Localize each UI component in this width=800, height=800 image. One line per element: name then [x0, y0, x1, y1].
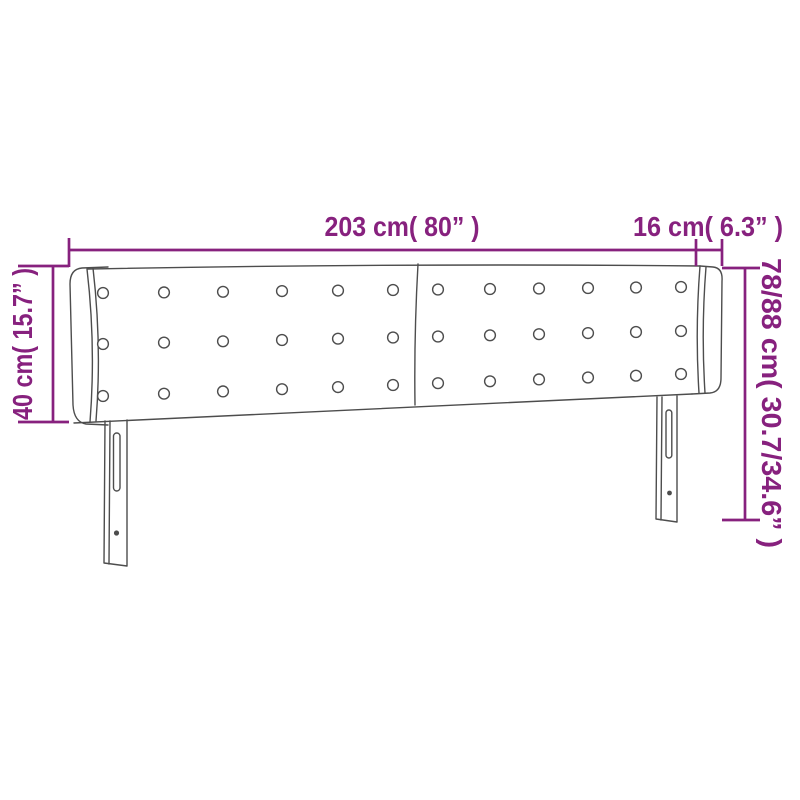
tuft-button — [631, 327, 642, 338]
side-height-dimension: 40 cm( 15.7” ) — [7, 266, 69, 422]
side-depth-dimension-label: 16 cm( 6.3” ) — [633, 211, 783, 242]
right-leg-slot — [666, 410, 672, 458]
tuft-button — [534, 283, 545, 294]
left-leg-inner-edge — [109, 421, 110, 564]
dimension-annotations: 203 cm( 80” ) 16 cm( 6.3” ) 40 cm( 15.7”… — [7, 211, 787, 548]
width-dimension: 203 cm( 80” ) 16 cm( 6.3” ) — [69, 211, 783, 267]
tuft-button — [333, 382, 344, 393]
total-height-dimension: 78/88 cm( 30.7/34.6” ) — [722, 258, 787, 548]
tuft-button — [433, 284, 444, 295]
diagram-canvas: 203 cm( 80” ) 16 cm( 6.3” ) 40 cm( 15.7”… — [0, 0, 800, 800]
right-leg-hole — [667, 491, 672, 496]
tuft-button — [98, 288, 109, 299]
left-leg-hole — [114, 530, 119, 535]
center-seam — [415, 264, 418, 405]
tuft-button — [98, 391, 109, 402]
headboard-line-art — [70, 264, 722, 566]
tuft-button — [433, 331, 444, 342]
left-wing-roll-line — [87, 269, 92, 422]
tuft-button — [631, 370, 642, 381]
tuft-button — [159, 287, 170, 298]
tuft-button — [218, 336, 229, 347]
tuft-button — [583, 283, 594, 294]
tuft-button — [485, 376, 496, 387]
tuft-button — [218, 386, 229, 397]
tuft-button — [583, 372, 594, 383]
tuft-button — [534, 374, 545, 385]
tuft-button — [485, 284, 496, 295]
right-leg-inner-edge — [661, 397, 662, 520]
tuft-button — [277, 384, 288, 395]
right-wing — [692, 266, 722, 394]
tuft-button — [388, 332, 399, 343]
tuft-button — [333, 333, 344, 344]
right-wing-roll-line — [703, 267, 706, 393]
tuft-button — [676, 369, 687, 380]
headboard-top-edge — [88, 265, 700, 269]
side-height-dimension-label: 40 cm( 15.7” ) — [7, 268, 38, 420]
tuft-button — [159, 337, 170, 348]
tuft-button — [388, 380, 399, 391]
width-dimension-label: 203 cm( 80” ) — [325, 211, 480, 242]
tuft-button — [631, 282, 642, 293]
tuft-button — [485, 330, 496, 341]
tuft-button — [218, 286, 229, 297]
tuft-button — [277, 286, 288, 297]
tuft-button — [433, 378, 444, 389]
tuft-button — [333, 285, 344, 296]
tuft-button — [388, 285, 399, 296]
tufting-buttons — [98, 282, 687, 402]
tuft-button — [98, 339, 109, 350]
tuft-button — [277, 335, 288, 346]
tuft-button — [159, 388, 170, 399]
headboard-dimension-diagram: 203 cm( 80” ) 16 cm( 6.3” ) 40 cm( 15.7”… — [0, 0, 800, 800]
left-leg-slot — [114, 433, 121, 491]
tuft-button — [583, 328, 594, 339]
left-leg — [104, 420, 127, 566]
tuft-button — [676, 326, 687, 337]
total-height-dimension-label: 78/88 cm( 30.7/34.6” ) — [756, 258, 787, 548]
tuft-button — [676, 282, 687, 293]
tuft-button — [534, 329, 545, 340]
right-wing-roll-line — [697, 266, 700, 393]
